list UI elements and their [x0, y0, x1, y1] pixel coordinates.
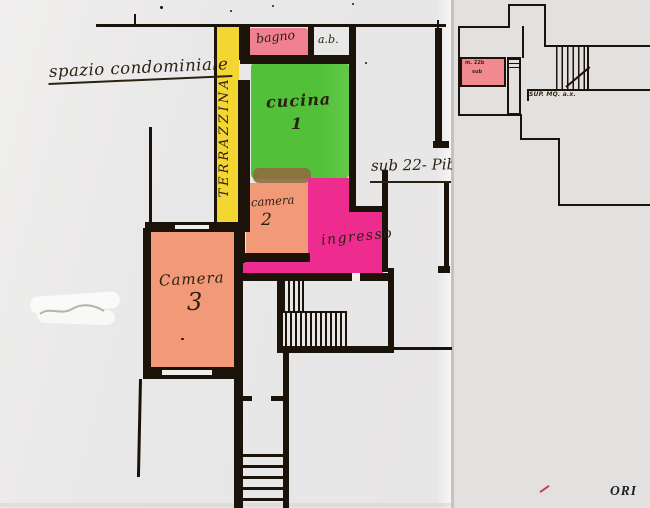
- ink-speck-2: [272, 5, 274, 7]
- wall-right-partial-upper: [435, 28, 442, 148]
- annotation-spazio-condominiale: spazio condominiale: [48, 56, 232, 84]
- door-jamb-corridor-left: [243, 396, 252, 401]
- ink-speck-5: [181, 338, 184, 340]
- inset-shaft-hatch: [509, 59, 519, 69]
- door-jamb-corridor-right: [271, 396, 283, 401]
- wall-left-thin-lower: [137, 379, 142, 477]
- inset-wall-bottom: [558, 204, 650, 206]
- ink-speck-4: [365, 62, 367, 64]
- whiteout-scribble: [38, 302, 110, 320]
- inset-highlight-room: m. 22b sub: [460, 57, 506, 87]
- annotation-sub-clip: sub 22- Pib: [371, 156, 452, 184]
- stairs-bottom-ladder: [243, 454, 283, 501]
- inset-room-text-1: m. 22b: [465, 61, 484, 66]
- inset-wall-step2-h: [520, 138, 560, 140]
- inset-notch-right: [544, 4, 546, 47]
- wall-right-partial-lower-foot: [438, 266, 450, 273]
- ink-speck-3: [352, 3, 354, 5]
- inset-notch-left: [508, 4, 510, 28]
- inset-room-text-2: sub: [472, 70, 482, 75]
- wall-top-tick-left: [134, 14, 136, 27]
- wall-stairblock-top: [238, 273, 393, 281]
- label-camera3: Camera: [159, 270, 225, 288]
- door-camera3-bottom: [162, 370, 212, 375]
- label-camera3-number: 3: [187, 290, 202, 314]
- wall-stairblock-right: [388, 268, 394, 352]
- cucina-smudge: [253, 168, 311, 183]
- inset-wall-step1-v: [520, 114, 522, 140]
- inset-notch-top: [508, 4, 546, 6]
- inset-wall-connector: [522, 26, 524, 58]
- stamp-ori: ORI: [610, 483, 637, 499]
- inset-wall-top-left: [458, 26, 510, 28]
- label-terrazzina: TERRAZZINA: [218, 37, 238, 237]
- label-cucina-number: 1: [291, 116, 302, 132]
- wall-right-partial-upper-foot: [433, 141, 449, 148]
- wall-right-partial-lower: [444, 183, 449, 269]
- door-camera3-top: [175, 225, 209, 229]
- wall-terrazzina-right-lower: [238, 80, 250, 232]
- wall-left-thin-upper: [149, 127, 152, 222]
- label-camera2-number: 2: [261, 212, 272, 229]
- wall-line-to-fold: [394, 347, 452, 350]
- ink-speck-1: [160, 6, 163, 9]
- ink-speck-6: [230, 10, 232, 12]
- inset-shaft: [507, 57, 521, 115]
- wall-camera2-bottom: [238, 253, 310, 262]
- annotation-sub: sub 22- Pib: [371, 157, 452, 173]
- label-camera2: camera: [251, 195, 295, 209]
- wall-bagno-bottom: [240, 55, 356, 64]
- sheet-bottom-shadow: [0, 503, 452, 507]
- wall-ingresso-step-v: [382, 170, 388, 272]
- label-cucina: cucina: [266, 91, 332, 110]
- inset-sup-label: SUP. MQ. a.x.: [529, 92, 576, 98]
- wall-top: [96, 24, 446, 27]
- fold-crease: [451, 0, 454, 508]
- wall-bagno-antibagno: [308, 26, 314, 57]
- wall-stairblock-bottom: [277, 346, 394, 353]
- stairs-main-flight: [280, 311, 347, 346]
- inset-wall-step2-v: [558, 138, 560, 206]
- label-antibagno: a.b.: [318, 34, 339, 45]
- wall-camera3-left: [143, 228, 151, 379]
- stairs-upper-narrow: [283, 281, 304, 313]
- door-stairblock-top: [352, 273, 360, 281]
- room-ingresso-fill-upper: [308, 178, 349, 212]
- scanned-floorplan-page: m. 22b sub SUP. MQ. a.x.: [0, 0, 650, 508]
- annotation-sub-underline: [370, 181, 451, 183]
- wall-flat-right: [349, 24, 356, 212]
- wall-corridor-right: [283, 352, 289, 508]
